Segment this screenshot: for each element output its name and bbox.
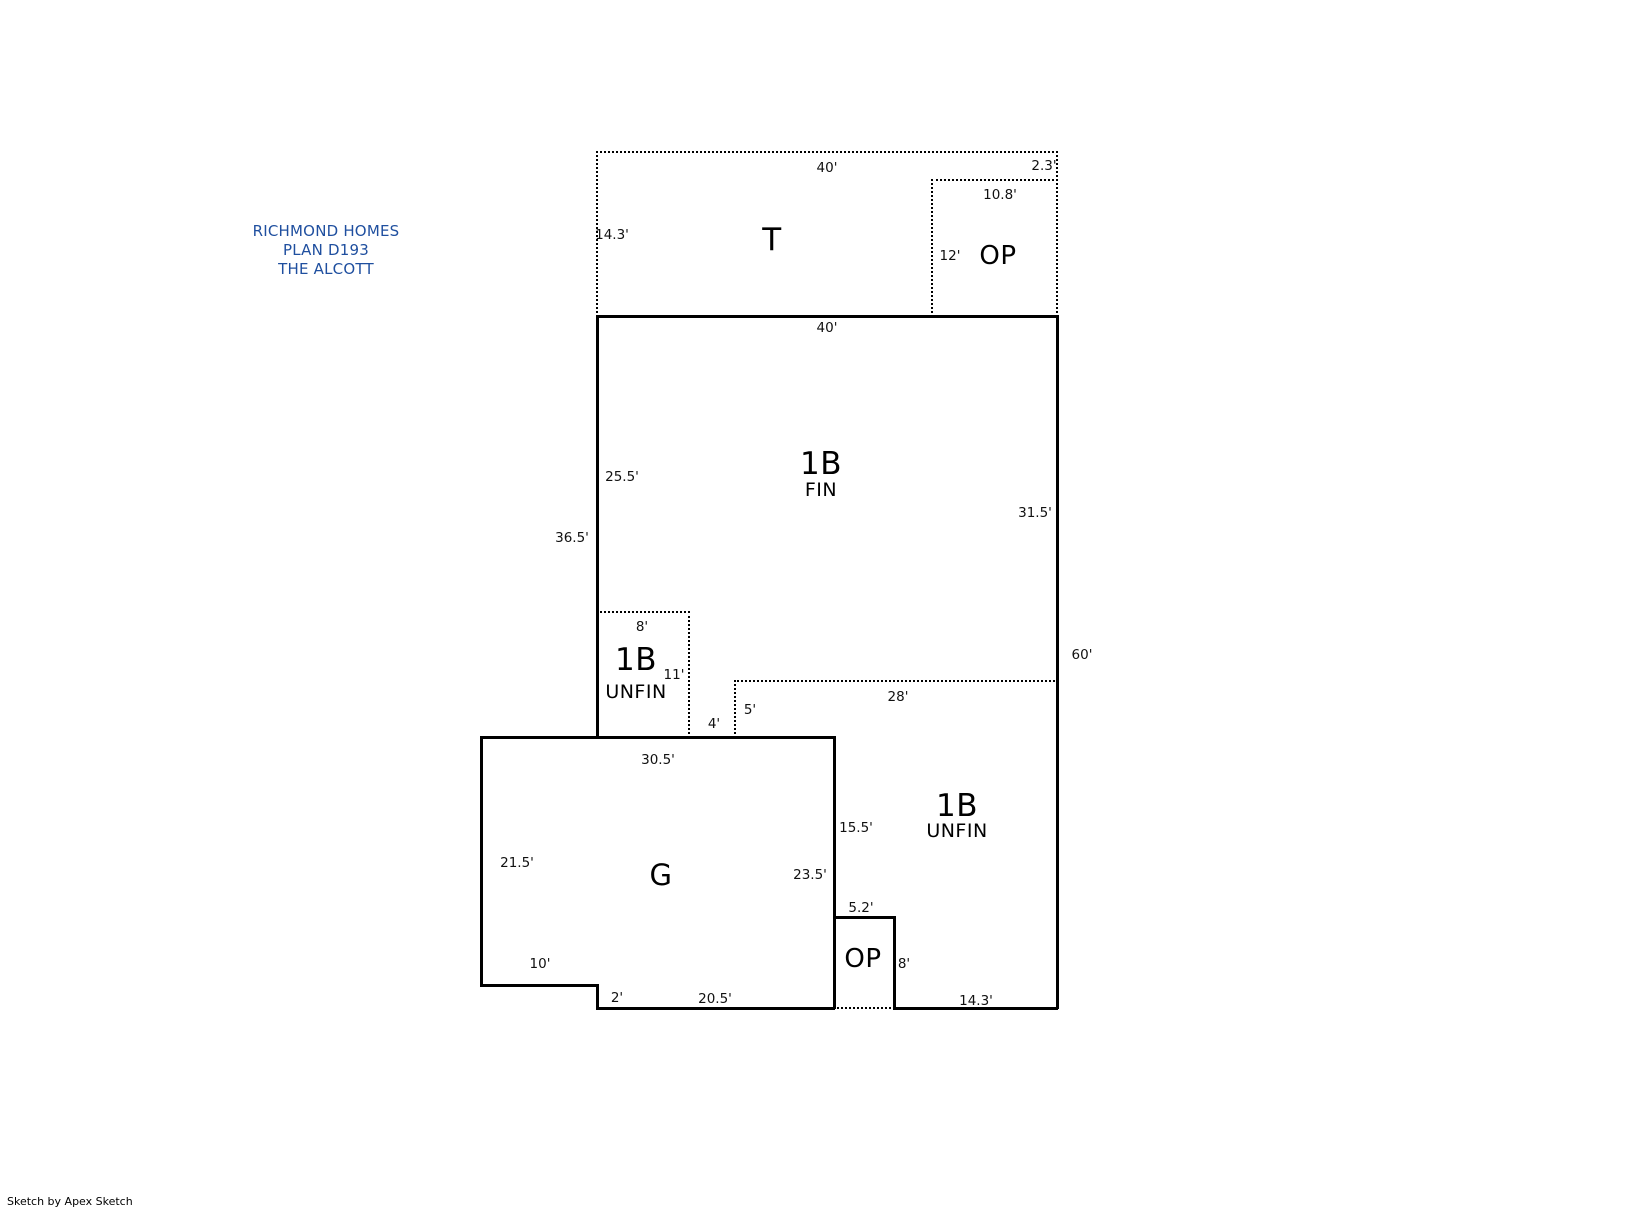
dim-terrace-width: 40' bbox=[817, 160, 838, 176]
dim-unfin-left-width: 8' bbox=[636, 619, 648, 635]
dim-op-upper-offset: 2.3' bbox=[1031, 158, 1056, 174]
op-lower-bottom-edge bbox=[833, 1007, 895, 1009]
terrace-top-edge bbox=[596, 151, 1058, 153]
garage-bottom-wall-lower bbox=[596, 1007, 835, 1010]
garage-right-wall bbox=[833, 736, 836, 1009]
dim-main-left-total: 36.5' bbox=[555, 530, 589, 546]
basement-unfin-left-top-edge bbox=[596, 611, 690, 613]
room-label-1b-unfin-left-sub: UNFIN bbox=[605, 681, 666, 703]
plan-title-block: RICHMOND HOMES PLAN D193 THE ALCOTT bbox=[226, 222, 426, 279]
dim-garage-bottom-left: 10' bbox=[530, 956, 551, 972]
dim-garage-step: 2' bbox=[611, 990, 623, 1006]
op-lower-top-wall bbox=[833, 916, 895, 919]
room-label-1b-unfin-right-sub: UNFIN bbox=[926, 820, 987, 842]
op-upper-left-edge bbox=[931, 179, 933, 317]
plan-number: PLAN D193 bbox=[226, 241, 426, 260]
dim-garage-width: 30.5' bbox=[641, 752, 675, 768]
dim-op-upper-width: 10.8' bbox=[983, 187, 1017, 203]
dim-bottom-right: 14.3' bbox=[959, 993, 993, 1009]
room-label-1b-unfin-right-main: 1B bbox=[936, 788, 978, 824]
dim-garage-right-depth: 23.5' bbox=[793, 867, 827, 883]
basement-unfin-right-left-edge bbox=[734, 680, 736, 738]
dim-unfin-right-width: 28' bbox=[888, 689, 909, 705]
room-label-op-lower: OP bbox=[844, 944, 881, 974]
dim-main-width: 40' bbox=[817, 320, 838, 336]
room-label-op-upper: OP bbox=[979, 241, 1016, 271]
op-upper-top-edge bbox=[931, 179, 1058, 181]
garage-left-wall bbox=[480, 736, 483, 986]
dim-main-right-upper: 31.5' bbox=[1018, 505, 1052, 521]
main-right-wall bbox=[1056, 315, 1059, 1009]
room-label-1b-unfin-left-main: 1B bbox=[615, 642, 657, 678]
dim-op-lower-width: 5.2' bbox=[848, 900, 873, 916]
dim-garage-right-upper: 15.5' bbox=[839, 820, 873, 836]
dim-garage-left-depth: 21.5' bbox=[500, 855, 534, 871]
dim-garage-top-gap: 4' bbox=[708, 716, 720, 732]
room-label-1b-fin-sub: FIN bbox=[805, 479, 837, 501]
op-lower-right-wall bbox=[893, 916, 896, 1009]
apex-watermark: Sketch by Apex Sketch bbox=[7, 1195, 133, 1208]
main-left-wall bbox=[596, 315, 599, 738]
dim-garage-bottom: 20.5' bbox=[698, 991, 732, 1007]
dim-unfin-left-depth: 11' bbox=[664, 667, 685, 683]
dim-op-lower-depth: 8' bbox=[898, 956, 910, 972]
floorplan-canvas: RICHMOND HOMES PLAN D193 THE ALCOTT 40'2… bbox=[0, 0, 1647, 1208]
terrace-op-right-edge bbox=[1056, 151, 1058, 317]
dim-main-left-upper: 25.5' bbox=[605, 469, 639, 485]
builder-name: RICHMOND HOMES bbox=[226, 222, 426, 241]
garage-bottom-wall-upper bbox=[480, 984, 598, 987]
garage-step-wall bbox=[596, 984, 599, 1009]
dim-unfin-right-left: 5' bbox=[744, 702, 756, 718]
dim-op-upper-depth: 12' bbox=[940, 248, 961, 264]
dim-right-side-total: 60' bbox=[1072, 647, 1093, 663]
basement-unfin-left-right-edge bbox=[688, 611, 690, 738]
plan-name: THE ALCOTT bbox=[226, 260, 426, 279]
dim-terrace-depth: 14.3' bbox=[595, 227, 629, 243]
room-label-1b-fin-main: 1B bbox=[800, 446, 842, 482]
room-label-terrace: T bbox=[762, 222, 781, 258]
room-label-garage: G bbox=[650, 858, 673, 892]
basement-unfin-right-top-edge bbox=[734, 680, 1058, 682]
main-top-wall bbox=[596, 315, 1058, 318]
garage-top-wall bbox=[480, 736, 835, 739]
